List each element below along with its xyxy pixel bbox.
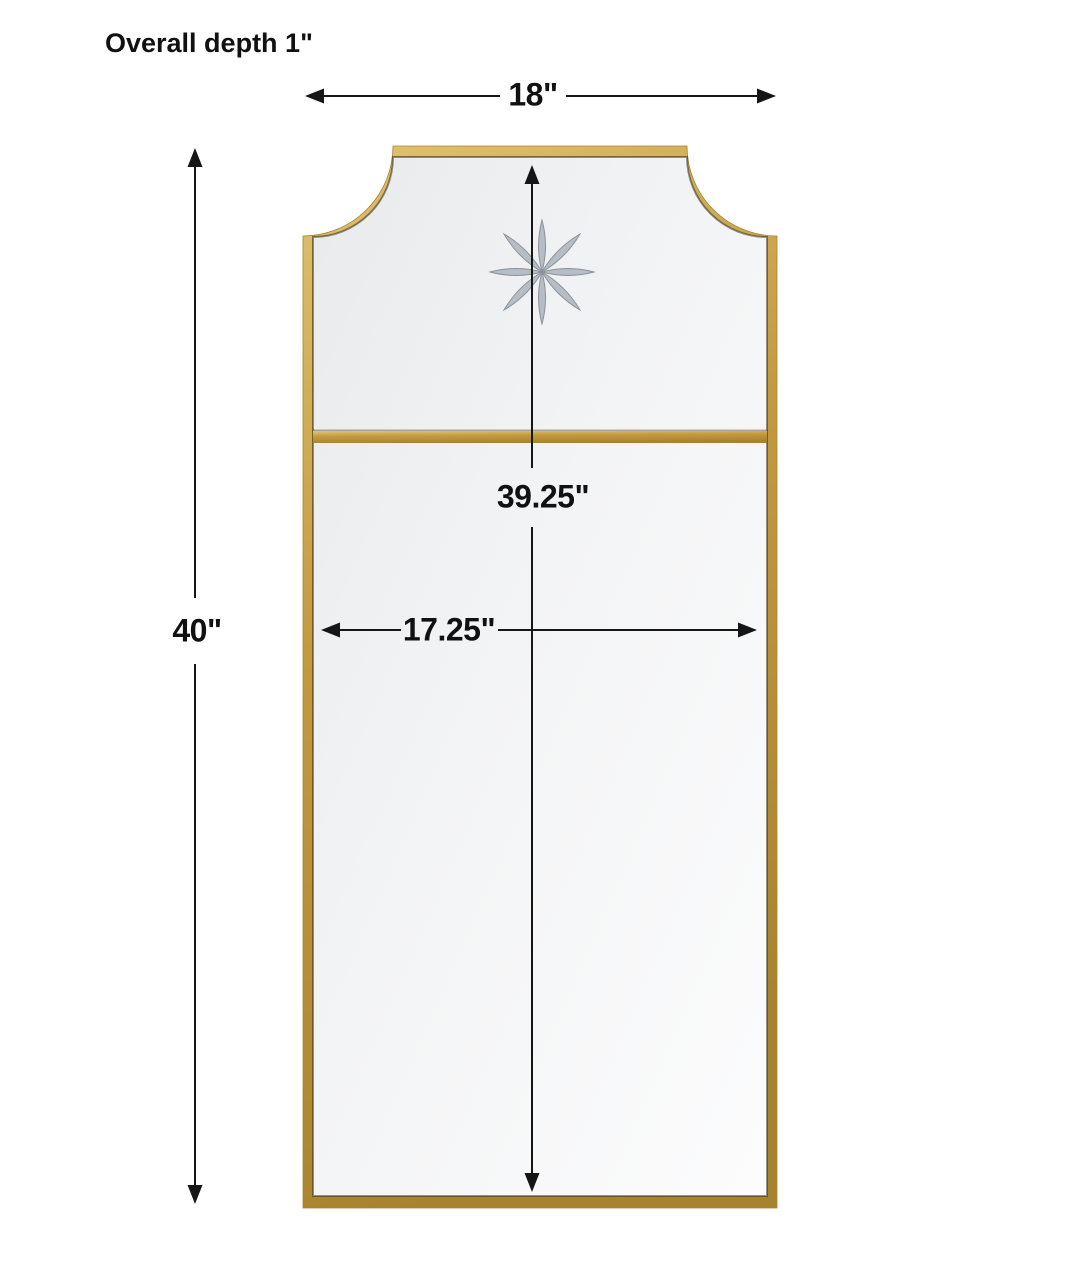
arrow-up-icon [188, 148, 203, 167]
arrow-down-icon [188, 1185, 203, 1204]
arrow-left-icon [305, 89, 324, 104]
overall-height-label: 40" [172, 613, 221, 650]
frame-divider-bar [313, 431, 767, 443]
overall-width-label: 18" [508, 77, 557, 114]
mirror-height-label: 39.25" [497, 479, 589, 516]
dimension-diagram: Overall depth 1" [0, 0, 1080, 1280]
arrow-right-icon [757, 89, 776, 104]
mirror-illustration [0, 0, 1080, 1280]
mirror-width-label: 17.25" [403, 612, 495, 649]
etched-star-icon [490, 220, 594, 324]
overall-height-dimension [188, 148, 203, 1204]
